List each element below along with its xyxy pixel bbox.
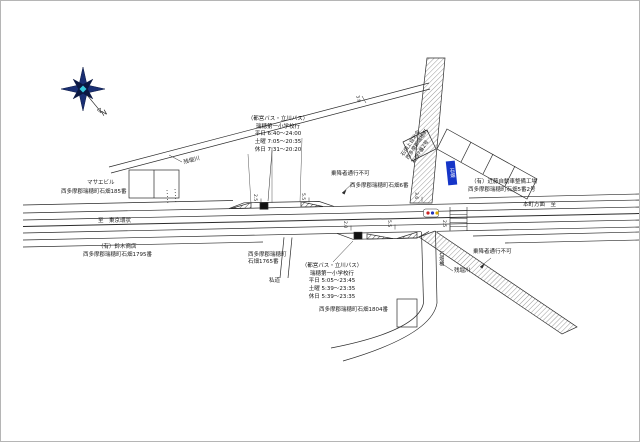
north-compass-icon: [61, 67, 105, 113]
map-canvas: 石畑 （都営バス・立川バス） 瑞穂第一小学校行 平日 6:40～24:00 土曜…: [0, 0, 640, 442]
kondo-garage-name: （有）近藤自動車整備工場: [471, 179, 537, 186]
bus-schedule-note-lower: （都営バス・立川バス） 瑞穂第一小学校行 平日 5:05～23:45 土曜 5:…: [287, 263, 377, 301]
kondo-garage-addr: 西多摩郡瑞穂町石畑5番2号: [468, 187, 536, 194]
dim-1: 2.5: [251, 194, 257, 201]
private-road: 私道: [269, 278, 280, 285]
mazue-building-name: マサエビル: [87, 180, 115, 187]
note-upper-weekday: 平日 6:40～24:00: [233, 131, 323, 139]
map-linework: [1, 1, 640, 442]
dim-2: 5.5: [299, 193, 305, 200]
bus-schedule-note-upper: （都営バス・立川バス） 瑞穂第一小学校行 平日 6:40～24:00 土曜 7:…: [233, 116, 323, 154]
addr-1765: 西多摩郡瑞穂町 石畑1765番: [248, 252, 287, 266]
note-lower-weekday: 平日 5:05～23:45: [287, 278, 377, 286]
bus-icon: [424, 209, 439, 217]
bridge-name: 石畑橋: [438, 251, 444, 266]
note-upper-holiday: 休日 7:31～20:20: [233, 147, 323, 155]
mazue-building-addr: 西多摩郡瑞穂町石畑185番: [61, 189, 127, 196]
river-label-lower: 残堀川: [454, 268, 471, 275]
addr-1804: 西多摩郡瑞穂町石畑1804番: [319, 307, 388, 314]
addr-ishihata-6: 西多摩郡瑞穂町石畑6番: [350, 183, 409, 190]
stop-marker-upper: [260, 203, 268, 209]
note-lower-saturday: 土曜 5:39～23:35: [287, 286, 377, 294]
dim-5: 5.5: [385, 220, 391, 227]
crosswalk: [450, 207, 467, 231]
no-boarding-lower: 乗降者通行不可: [473, 249, 512, 256]
dim-4: 2.0: [341, 221, 347, 228]
no-boarding-upper: 乗降者通行不可: [331, 171, 370, 178]
note-lower-title: （都営バス・立川バス）: [287, 263, 377, 271]
suzuki-shop-name: （有）鈴木商店: [98, 244, 137, 251]
note-upper-saturday: 土曜 7:05～20:35: [233, 139, 323, 147]
road-to-right: 本町方面 至: [523, 202, 556, 209]
road-to-left: 至 東京環状: [98, 218, 131, 225]
note-upper-title: （都営バス・立川バス）: [233, 116, 323, 124]
dim-6: 3.6: [412, 192, 418, 199]
dim-7: 2.5: [440, 220, 446, 227]
suzuki-shop-addr: 西多摩郡瑞穂町石畑1795番: [83, 252, 152, 259]
stop-marker-lower: [354, 232, 362, 239]
side-roads: [167, 138, 437, 361]
note-lower-holiday: 休日 5:39～23:35: [287, 294, 377, 302]
